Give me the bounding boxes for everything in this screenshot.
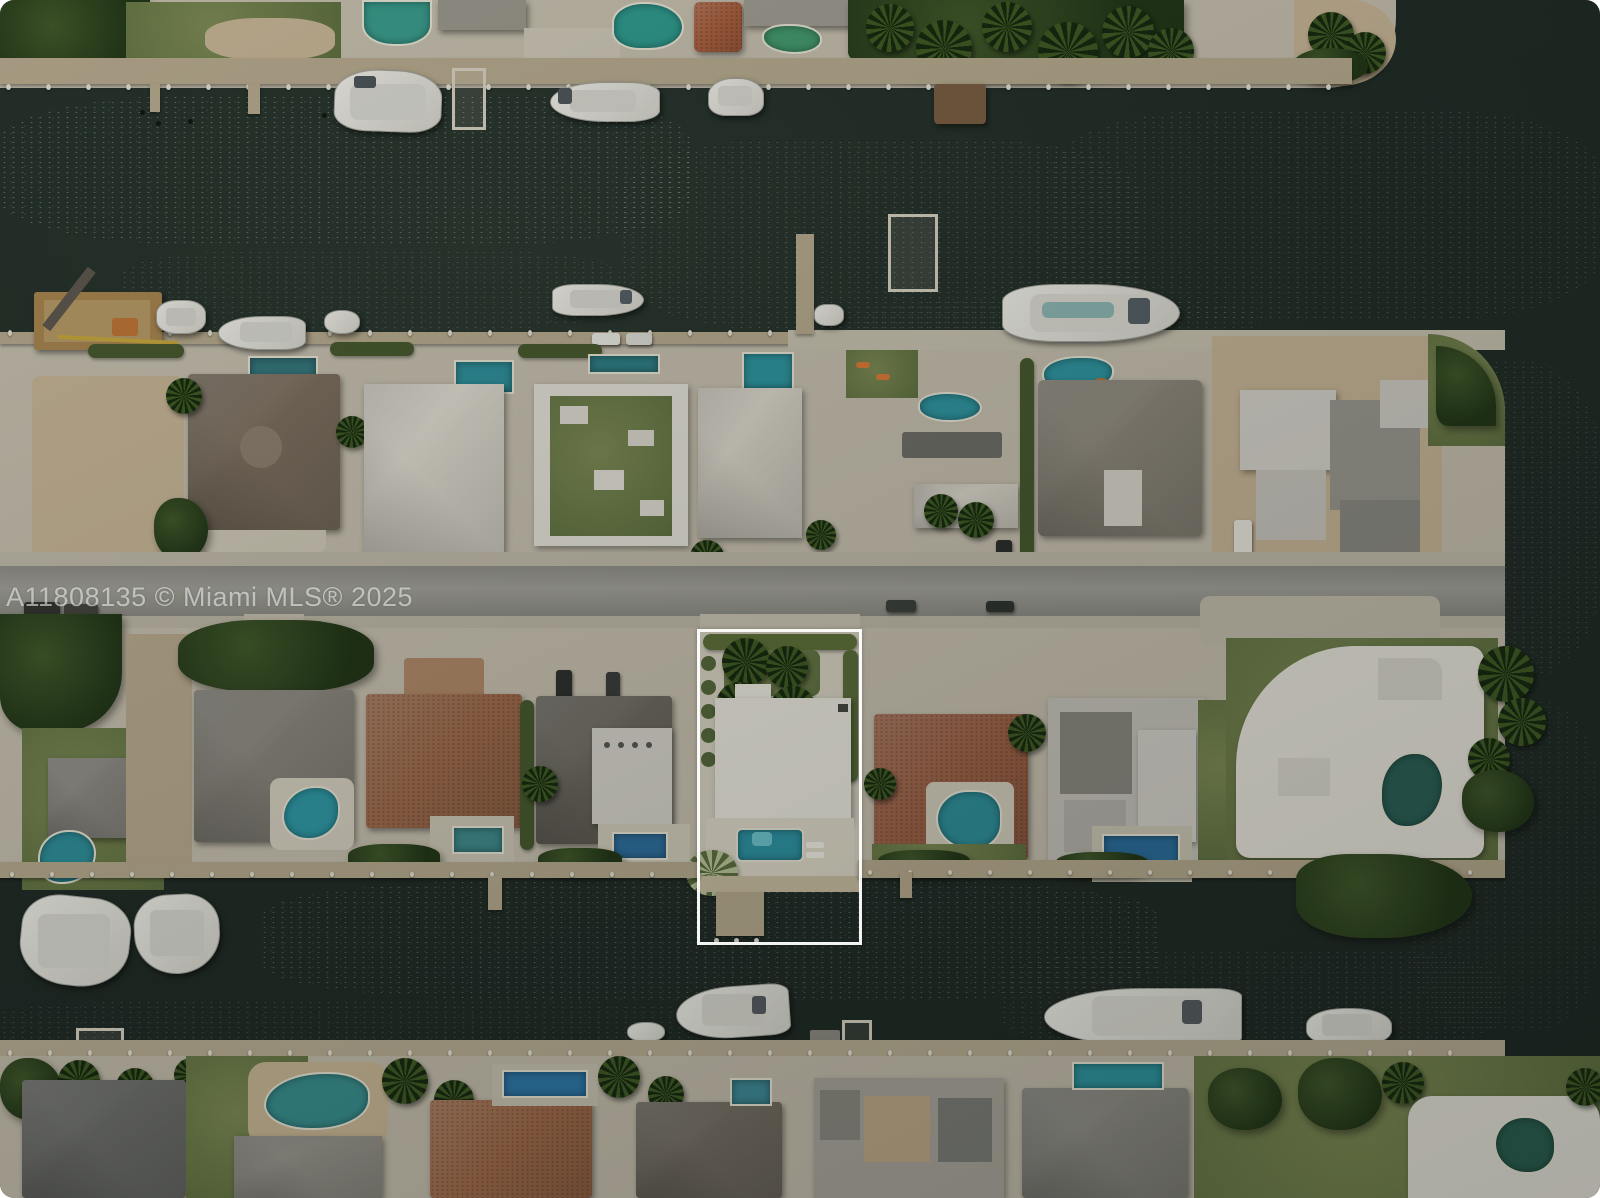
parked-car xyxy=(626,333,652,345)
canal-seawall xyxy=(0,862,700,878)
piling xyxy=(156,121,161,126)
palm-tree xyxy=(864,768,896,800)
mooring-post xyxy=(1468,870,1472,875)
mooring-post xyxy=(1006,84,1011,90)
brown-hip-roof-house xyxy=(636,1102,782,1198)
construction-block xyxy=(1240,390,1336,470)
white-gable xyxy=(1104,470,1142,526)
mooring-post xyxy=(166,84,171,90)
boat-deck xyxy=(1322,1014,1372,1036)
mooring-post xyxy=(686,84,691,90)
mooring-post xyxy=(370,872,374,877)
boat-deck xyxy=(570,290,624,308)
rooftop-block xyxy=(640,500,664,516)
mooring-post xyxy=(450,872,454,877)
palm-tree xyxy=(1566,1068,1600,1106)
mooring-post xyxy=(1126,84,1131,90)
boat-deck xyxy=(166,308,196,326)
palm-tree xyxy=(382,1058,428,1104)
boat-windshield xyxy=(354,76,376,88)
mooring-post xyxy=(728,330,732,336)
boat-windshield xyxy=(1182,1000,1202,1024)
mooring-post xyxy=(1228,870,1232,875)
roof-turret xyxy=(240,426,282,468)
jetty xyxy=(900,872,912,898)
mooring-post xyxy=(1246,84,1251,90)
mooring-post xyxy=(408,330,412,336)
mooring-post xyxy=(528,330,532,336)
aerial-photo: A11808135 © Miami MLS® 2025 xyxy=(0,0,1600,1198)
palm-tree xyxy=(924,494,958,528)
north-cabana-tile-roof xyxy=(694,2,742,52)
gray-hip-roof-house xyxy=(1022,1088,1188,1198)
north-seawall-dock xyxy=(0,58,1352,84)
north-scalloped-pool xyxy=(612,2,684,50)
north-house xyxy=(438,0,526,30)
palm-tree xyxy=(598,1056,640,1098)
roof-block xyxy=(1378,658,1442,700)
mooring-post xyxy=(526,84,531,90)
mooring-post xyxy=(1286,84,1291,90)
palm-tree xyxy=(982,2,1032,52)
mooring-post xyxy=(208,330,212,336)
palm-tree xyxy=(1478,646,1534,702)
small-boat xyxy=(324,310,360,334)
mooring-post xyxy=(8,330,12,336)
teal-pool xyxy=(730,1078,772,1106)
mooring-post xyxy=(1068,870,1072,875)
parked-car xyxy=(606,672,620,698)
terracotta-roof-house xyxy=(430,1100,592,1198)
mooring-post xyxy=(846,84,851,90)
street-car xyxy=(886,600,916,612)
mooring-post xyxy=(330,872,334,877)
roof-block xyxy=(1278,758,1330,796)
white-curved-mansion xyxy=(1236,646,1484,858)
gray-house xyxy=(48,758,132,838)
driveway-apron xyxy=(700,614,860,630)
mooring-post xyxy=(1028,870,1032,875)
mooring-post xyxy=(486,84,491,90)
yard-trees xyxy=(154,498,208,560)
kidney-pool xyxy=(918,392,982,422)
mooring-post xyxy=(130,872,134,877)
gray-house xyxy=(234,1136,382,1198)
construction-block xyxy=(1340,500,1420,560)
jetty xyxy=(488,876,502,910)
palm-tree xyxy=(1008,714,1046,752)
white-hip-house xyxy=(698,388,802,538)
mooring-post xyxy=(610,872,614,877)
mooring-post xyxy=(286,84,291,90)
lap-pool xyxy=(588,354,660,374)
south-trees xyxy=(1208,1068,1282,1130)
boat-windshield xyxy=(558,88,572,104)
lounger xyxy=(856,362,870,368)
north-sand-patch xyxy=(205,18,335,60)
palm-tree xyxy=(806,520,836,550)
boat-deck xyxy=(240,322,292,342)
mooring-post xyxy=(1188,870,1192,875)
waterfront-hedge xyxy=(330,342,414,356)
yacht-teal-deck xyxy=(1042,302,1114,318)
boat-deck xyxy=(150,910,204,956)
mooring-post xyxy=(1086,84,1091,90)
row2-trees xyxy=(0,614,122,732)
dark-hip-roof-house xyxy=(22,1080,186,1198)
paver-court xyxy=(404,658,484,698)
sport-court xyxy=(902,432,1002,458)
mooring-post xyxy=(10,872,14,877)
north-pool xyxy=(362,0,432,46)
mooring-post xyxy=(326,84,331,90)
jetty xyxy=(248,84,260,114)
rooftop-block xyxy=(560,406,588,424)
rooftop-block xyxy=(594,470,624,490)
small-boat xyxy=(814,304,844,326)
roof-block xyxy=(1060,712,1132,794)
property-hedge xyxy=(1020,358,1034,562)
north-house xyxy=(744,0,862,26)
teal-lap-pool xyxy=(1072,1062,1164,1090)
street-car xyxy=(986,601,1014,612)
mooring-post xyxy=(766,84,771,90)
pool xyxy=(452,826,504,854)
roof-block xyxy=(820,1090,860,1140)
mooring-post xyxy=(46,84,51,90)
shore-trees xyxy=(1462,770,1534,832)
mooring-post xyxy=(1148,870,1152,875)
mooring-post xyxy=(688,330,692,336)
mooring-post xyxy=(570,872,574,877)
mooring-post xyxy=(530,872,534,877)
mooring-post xyxy=(886,84,891,90)
canal-bank-trees xyxy=(1296,854,1472,938)
palm-tree xyxy=(1382,1062,1424,1104)
mooring-post xyxy=(50,872,54,877)
mooring-post xyxy=(368,330,372,336)
construction-block xyxy=(1380,380,1430,428)
roof-vent xyxy=(646,742,652,748)
mooring-post xyxy=(1206,84,1211,90)
mooring-post xyxy=(806,84,811,90)
boat-windshield xyxy=(1128,298,1150,324)
row2-trees xyxy=(178,620,374,692)
pool xyxy=(742,352,794,390)
mooring-post xyxy=(1166,84,1171,90)
mooring-post xyxy=(868,870,872,875)
mooring-post xyxy=(290,872,294,877)
dock-hut xyxy=(934,84,986,124)
jetski xyxy=(627,1022,665,1042)
courtyard xyxy=(864,1096,930,1162)
kidney-pool xyxy=(936,790,1002,850)
boat-deck xyxy=(718,86,752,106)
crane-cab xyxy=(112,318,138,336)
mooring-post xyxy=(206,84,211,90)
mooring-post xyxy=(768,330,772,336)
roof-block xyxy=(938,1098,992,1162)
sidewalk xyxy=(0,552,1505,566)
mooring-post xyxy=(210,872,214,877)
boat-windshield xyxy=(752,996,766,1014)
mooring-post xyxy=(250,872,254,877)
blue-lap-pool xyxy=(502,1070,588,1098)
palm-tree xyxy=(866,4,914,52)
mooring-post xyxy=(90,872,94,877)
mooring-post xyxy=(170,872,174,877)
mooring-post xyxy=(1046,84,1051,90)
rooftop-block xyxy=(628,430,654,446)
piling xyxy=(140,110,145,115)
mooring-post xyxy=(1268,870,1272,875)
boat-windshield xyxy=(620,290,632,304)
boat-deck xyxy=(570,90,636,112)
construction-block xyxy=(1256,470,1326,540)
boat-deck xyxy=(350,84,426,120)
north-walkway xyxy=(524,28,620,58)
mooring-post xyxy=(650,872,654,877)
palm-tree xyxy=(1498,698,1546,746)
mooring-post xyxy=(568,330,572,336)
waterfront-hedge xyxy=(88,344,184,358)
mooring-post xyxy=(1108,870,1112,875)
piling xyxy=(188,119,193,124)
palm-tree xyxy=(958,502,994,538)
palm-tree xyxy=(166,378,202,414)
mooring-post xyxy=(126,84,131,90)
property-highlight-outline xyxy=(697,629,862,945)
palm-tree xyxy=(522,766,558,802)
mooring-post xyxy=(86,84,91,90)
dark-pool xyxy=(1494,1116,1556,1174)
mls-watermark: A11808135 © Miami MLS® 2025 xyxy=(6,582,413,613)
mooring-post xyxy=(948,870,952,875)
lounger xyxy=(876,374,890,380)
boat-deck xyxy=(38,914,110,968)
jetty xyxy=(150,84,160,112)
mooring-post xyxy=(446,84,451,90)
roof-vent xyxy=(632,742,638,748)
mooring-post xyxy=(6,84,11,90)
roof-vent xyxy=(604,742,610,748)
mooring-post xyxy=(988,870,992,875)
mooring-post xyxy=(410,872,414,877)
mooring-post xyxy=(488,330,492,336)
piling xyxy=(322,113,327,118)
mooring-post xyxy=(1326,84,1331,90)
mooring-post xyxy=(448,330,452,336)
boat-lift-frame xyxy=(888,214,938,292)
palm-tree xyxy=(1102,6,1154,58)
south-trees xyxy=(1298,1058,1382,1130)
boat-lift-frame xyxy=(452,68,486,130)
white-roof-house xyxy=(364,384,504,560)
roof-vent xyxy=(618,742,624,748)
terracotta-tile-roof-house xyxy=(366,694,522,828)
mooring-post xyxy=(926,84,931,90)
pier xyxy=(796,234,814,334)
